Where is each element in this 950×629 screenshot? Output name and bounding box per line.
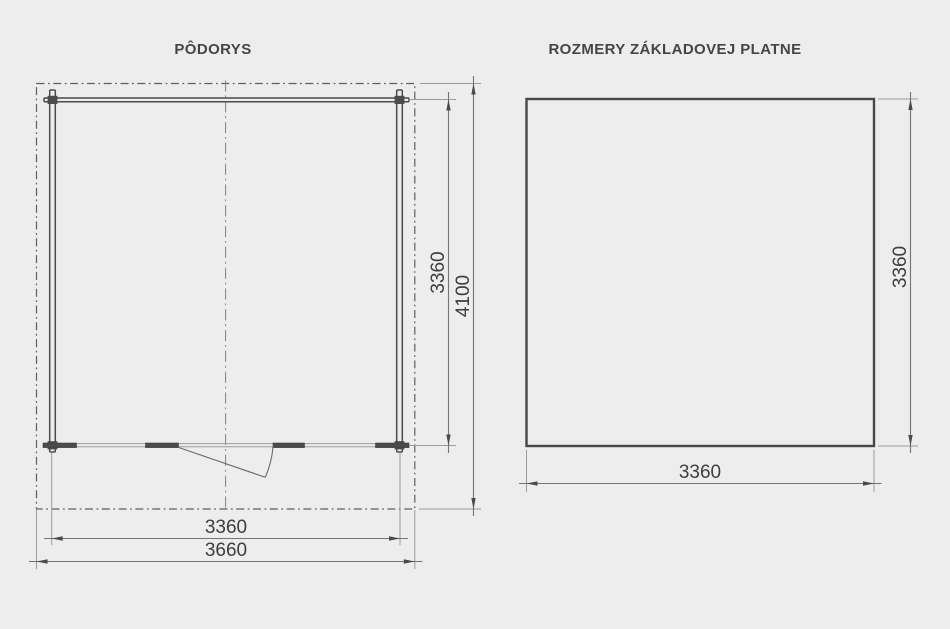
dim-inner-height: 3360 bbox=[409, 92, 456, 453]
dim-inner-width-arrow-left bbox=[52, 536, 63, 540]
dim-inner-height-arrow-bottom bbox=[446, 435, 450, 446]
dim-plate-width-arrow-right bbox=[863, 481, 874, 485]
dim-outer-width-arrow-left bbox=[37, 559, 48, 563]
left-wall bbox=[50, 90, 56, 452]
dim-plate-height-value: 3360 bbox=[890, 246, 911, 288]
front-wall-segment-left-of-door bbox=[146, 443, 179, 448]
dim-outer-height-arrow-top bbox=[471, 84, 475, 95]
dim-outer-height-value: 4100 bbox=[453, 275, 474, 317]
technical-drawing-sheet: PÔDORYS bbox=[0, 0, 950, 629]
base-plate-outline bbox=[527, 99, 875, 446]
dim-outer-height: 4100 bbox=[419, 76, 481, 516]
dim-plate-height: 3360 bbox=[878, 92, 918, 453]
corner-joint-top-left bbox=[48, 96, 58, 104]
dim-plate-width-arrow-left bbox=[527, 481, 538, 485]
front-wall-segment-right-of-door bbox=[273, 443, 305, 448]
base-plate-title: ROZMERY ZÁKLADOVEJ PLATNE bbox=[548, 41, 801, 58]
dim-inner-height-value: 3360 bbox=[428, 251, 449, 293]
floor-plan-drawing: PÔDORYS bbox=[29, 40, 481, 569]
base-plate-drawing: ROZMERY ZÁKLADOVEJ PLATNE 3360 3360 bbox=[519, 41, 918, 492]
dim-plate-height-arrow-bottom bbox=[908, 435, 912, 446]
top-wall bbox=[44, 98, 409, 102]
drawing-canvas: PÔDORYS bbox=[0, 0, 950, 629]
corner-joint-top-right bbox=[395, 96, 405, 104]
dim-plate-height-arrow-top bbox=[908, 99, 912, 110]
door-swing-arc bbox=[265, 447, 273, 478]
front-sill-line bbox=[50, 444, 403, 447]
right-wall bbox=[397, 90, 403, 452]
dim-outer-width-arrow-right bbox=[404, 559, 415, 563]
dim-outer-height-arrow-bottom bbox=[471, 498, 475, 509]
floor-plan-title: PÔDORYS bbox=[174, 40, 251, 58]
dim-outer-width-value: 3660 bbox=[205, 540, 247, 561]
front-wall-segment-right-corner bbox=[376, 443, 410, 448]
dim-inner-width-arrow-right bbox=[389, 536, 400, 540]
front-wall-segment-left-corner bbox=[43, 443, 77, 448]
dim-plate-width-value: 3360 bbox=[679, 462, 721, 483]
door-leaf bbox=[179, 448, 265, 478]
dim-plate-width: 3360 bbox=[519, 450, 882, 492]
dim-inner-width-value: 3360 bbox=[205, 517, 247, 538]
dim-inner-height-arrow-top bbox=[446, 100, 450, 111]
